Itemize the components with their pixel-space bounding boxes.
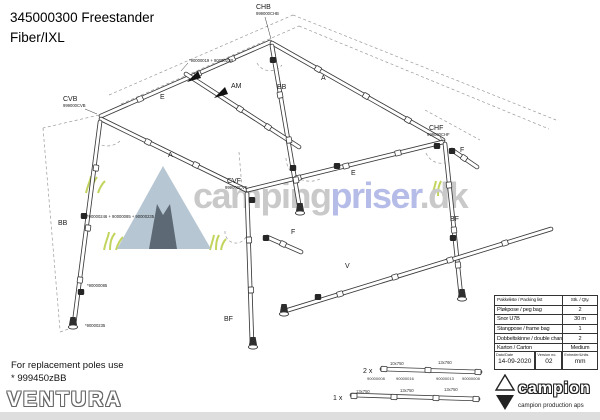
diagram-labels: CHB 999000CHB CVB 999000CVB CVF 999000CV…: [58, 4, 464, 328]
part-number-chb: 999000CHB: [256, 11, 279, 16]
corner-label-cvb: CVB: [63, 96, 78, 103]
corner-label-cvf: CVF: [227, 178, 241, 185]
item-name: Stangpose / frame bag: [495, 324, 563, 334]
grass-icon: [210, 235, 226, 250]
replacement-note-line1: For replacement poles use: [11, 359, 123, 372]
pole-label-v: V: [345, 263, 350, 270]
pole-label-bb-leg: BB: [58, 220, 68, 227]
version-box: Version no. 02: [535, 351, 562, 370]
spare-row2-dim-1: 13x750: [356, 389, 370, 394]
spare-row1-qty: 2 x: [363, 368, 373, 375]
drawing-page: campingpriser.dk: [0, 0, 600, 420]
part-number-chf: 999000CHF: [427, 132, 450, 137]
title-line2: Fiber/IXL: [10, 28, 154, 48]
item-qty: 2: [563, 334, 598, 344]
pole-label-e-back: E: [160, 94, 165, 101]
spare-row1-dim-1: 10x750: [390, 361, 404, 366]
version-value: 02: [536, 358, 561, 365]
pole-label-am: AM: [231, 83, 242, 90]
table-row: Pløkpose / peg bag 2: [495, 305, 598, 315]
title-line1: 345000300 Freestander: [10, 8, 154, 28]
packing-table-header: Pakkeliste / Packing list Stk. / Qty.: [495, 296, 598, 306]
part-number-cvf: 999000CVF: [225, 185, 248, 190]
replacement-note: For replacement poles use * 999450zBB: [11, 359, 123, 386]
grass-icon: [86, 176, 105, 193]
part-note-leg-foot: *90000235: [85, 323, 106, 328]
corner-label-chf: CHF: [429, 125, 443, 132]
page-title: 345000300 Freestander Fiber/IXL: [10, 8, 154, 49]
spare-row1-part-4: 90000008: [462, 376, 481, 381]
item-name: Dobbeltskinne / double channel: [495, 334, 563, 344]
pole-label-bf-front: BF: [224, 316, 233, 323]
pole-label-e-front: E: [351, 170, 356, 177]
ventura-logo: VENTURA: [7, 388, 123, 412]
pole-label-bb-top: BB: [277, 84, 287, 91]
packing-table: Pakkeliste / Packing list Stk. / Qty. Pl…: [494, 295, 598, 354]
date-value: 14-09-2020: [495, 358, 534, 365]
part-number-cvb: 999000CVB: [63, 103, 86, 108]
table-row: Snor U7B 30 m: [495, 315, 598, 325]
packing-header-qty: Stk. / Qty.: [563, 296, 598, 306]
campion-triangles-icon: [494, 374, 516, 412]
pole-label-a-right: A: [321, 75, 326, 82]
spare-row2-qty: 1 x: [333, 395, 343, 402]
watermark-dk: .dk: [420, 175, 470, 216]
watermark-priser: priser: [331, 175, 424, 216]
item-qty: 2: [563, 305, 598, 315]
pole-label-f-right: F: [460, 147, 464, 154]
replacement-note-line2: * 999450zBB: [11, 372, 123, 385]
info-row: Dato/Date 14-09-2020 Version no. 02 Enhe…: [494, 351, 598, 370]
pole-label-bf-right: BF: [450, 216, 459, 223]
pole-label-a-left: A: [168, 152, 173, 159]
date-label: Dato/Date: [496, 353, 513, 357]
spare-row1-part-1: 90000008: [367, 376, 386, 381]
dimension-lines: [43, 15, 556, 332]
spare-row2-dim-3: 13x750: [444, 387, 458, 392]
item-qty: 1: [563, 324, 598, 334]
part-note-ridge: *90000019 + 9000023B: [189, 58, 233, 63]
packing-header-name: Pakkeliste / Packing list: [495, 296, 563, 306]
watermark: campingpriser.dk: [86, 166, 470, 250]
item-qty: 30 m: [563, 315, 598, 325]
item-name: Pløkpose / peg bag: [495, 305, 563, 315]
campion-logo-text: campion: [518, 380, 591, 398]
spare-row1-dim-2: 13x760: [438, 360, 452, 365]
item-name: Snor U7B: [495, 315, 563, 325]
units-value: mm: [563, 358, 597, 365]
units-label: Enheder/Units: [564, 353, 588, 357]
corner-label-chb: CHB: [256, 4, 271, 11]
pole-feet: [68, 203, 466, 349]
part-note-leg-top: *90000246 + 90000085 + 90000235: [87, 214, 155, 219]
campion-logo-subtitle: campion production aps: [518, 402, 584, 409]
part-note-leg-mid: *90000085: [87, 283, 108, 288]
date-box: Dato/Date 14-09-2020: [494, 351, 535, 370]
spare-row1-part-2: 90000016: [396, 376, 415, 381]
version-label: Version no.: [537, 353, 556, 357]
bottom-strip: [0, 412, 600, 420]
pole-label-f-front: F: [291, 229, 295, 236]
table-row: Dobbeltskinne / double channel 2: [495, 334, 598, 344]
watermark-camping: camping: [193, 175, 331, 216]
campion-logo: campion campion production aps: [494, 374, 600, 416]
table-row: Stangpose / frame bag 1: [495, 324, 598, 334]
spare-row1-part-3: 90000013: [436, 376, 455, 381]
units-box: Enheder/Units mm: [562, 351, 598, 370]
spare-row2-dim-2: 13x750: [400, 388, 414, 393]
